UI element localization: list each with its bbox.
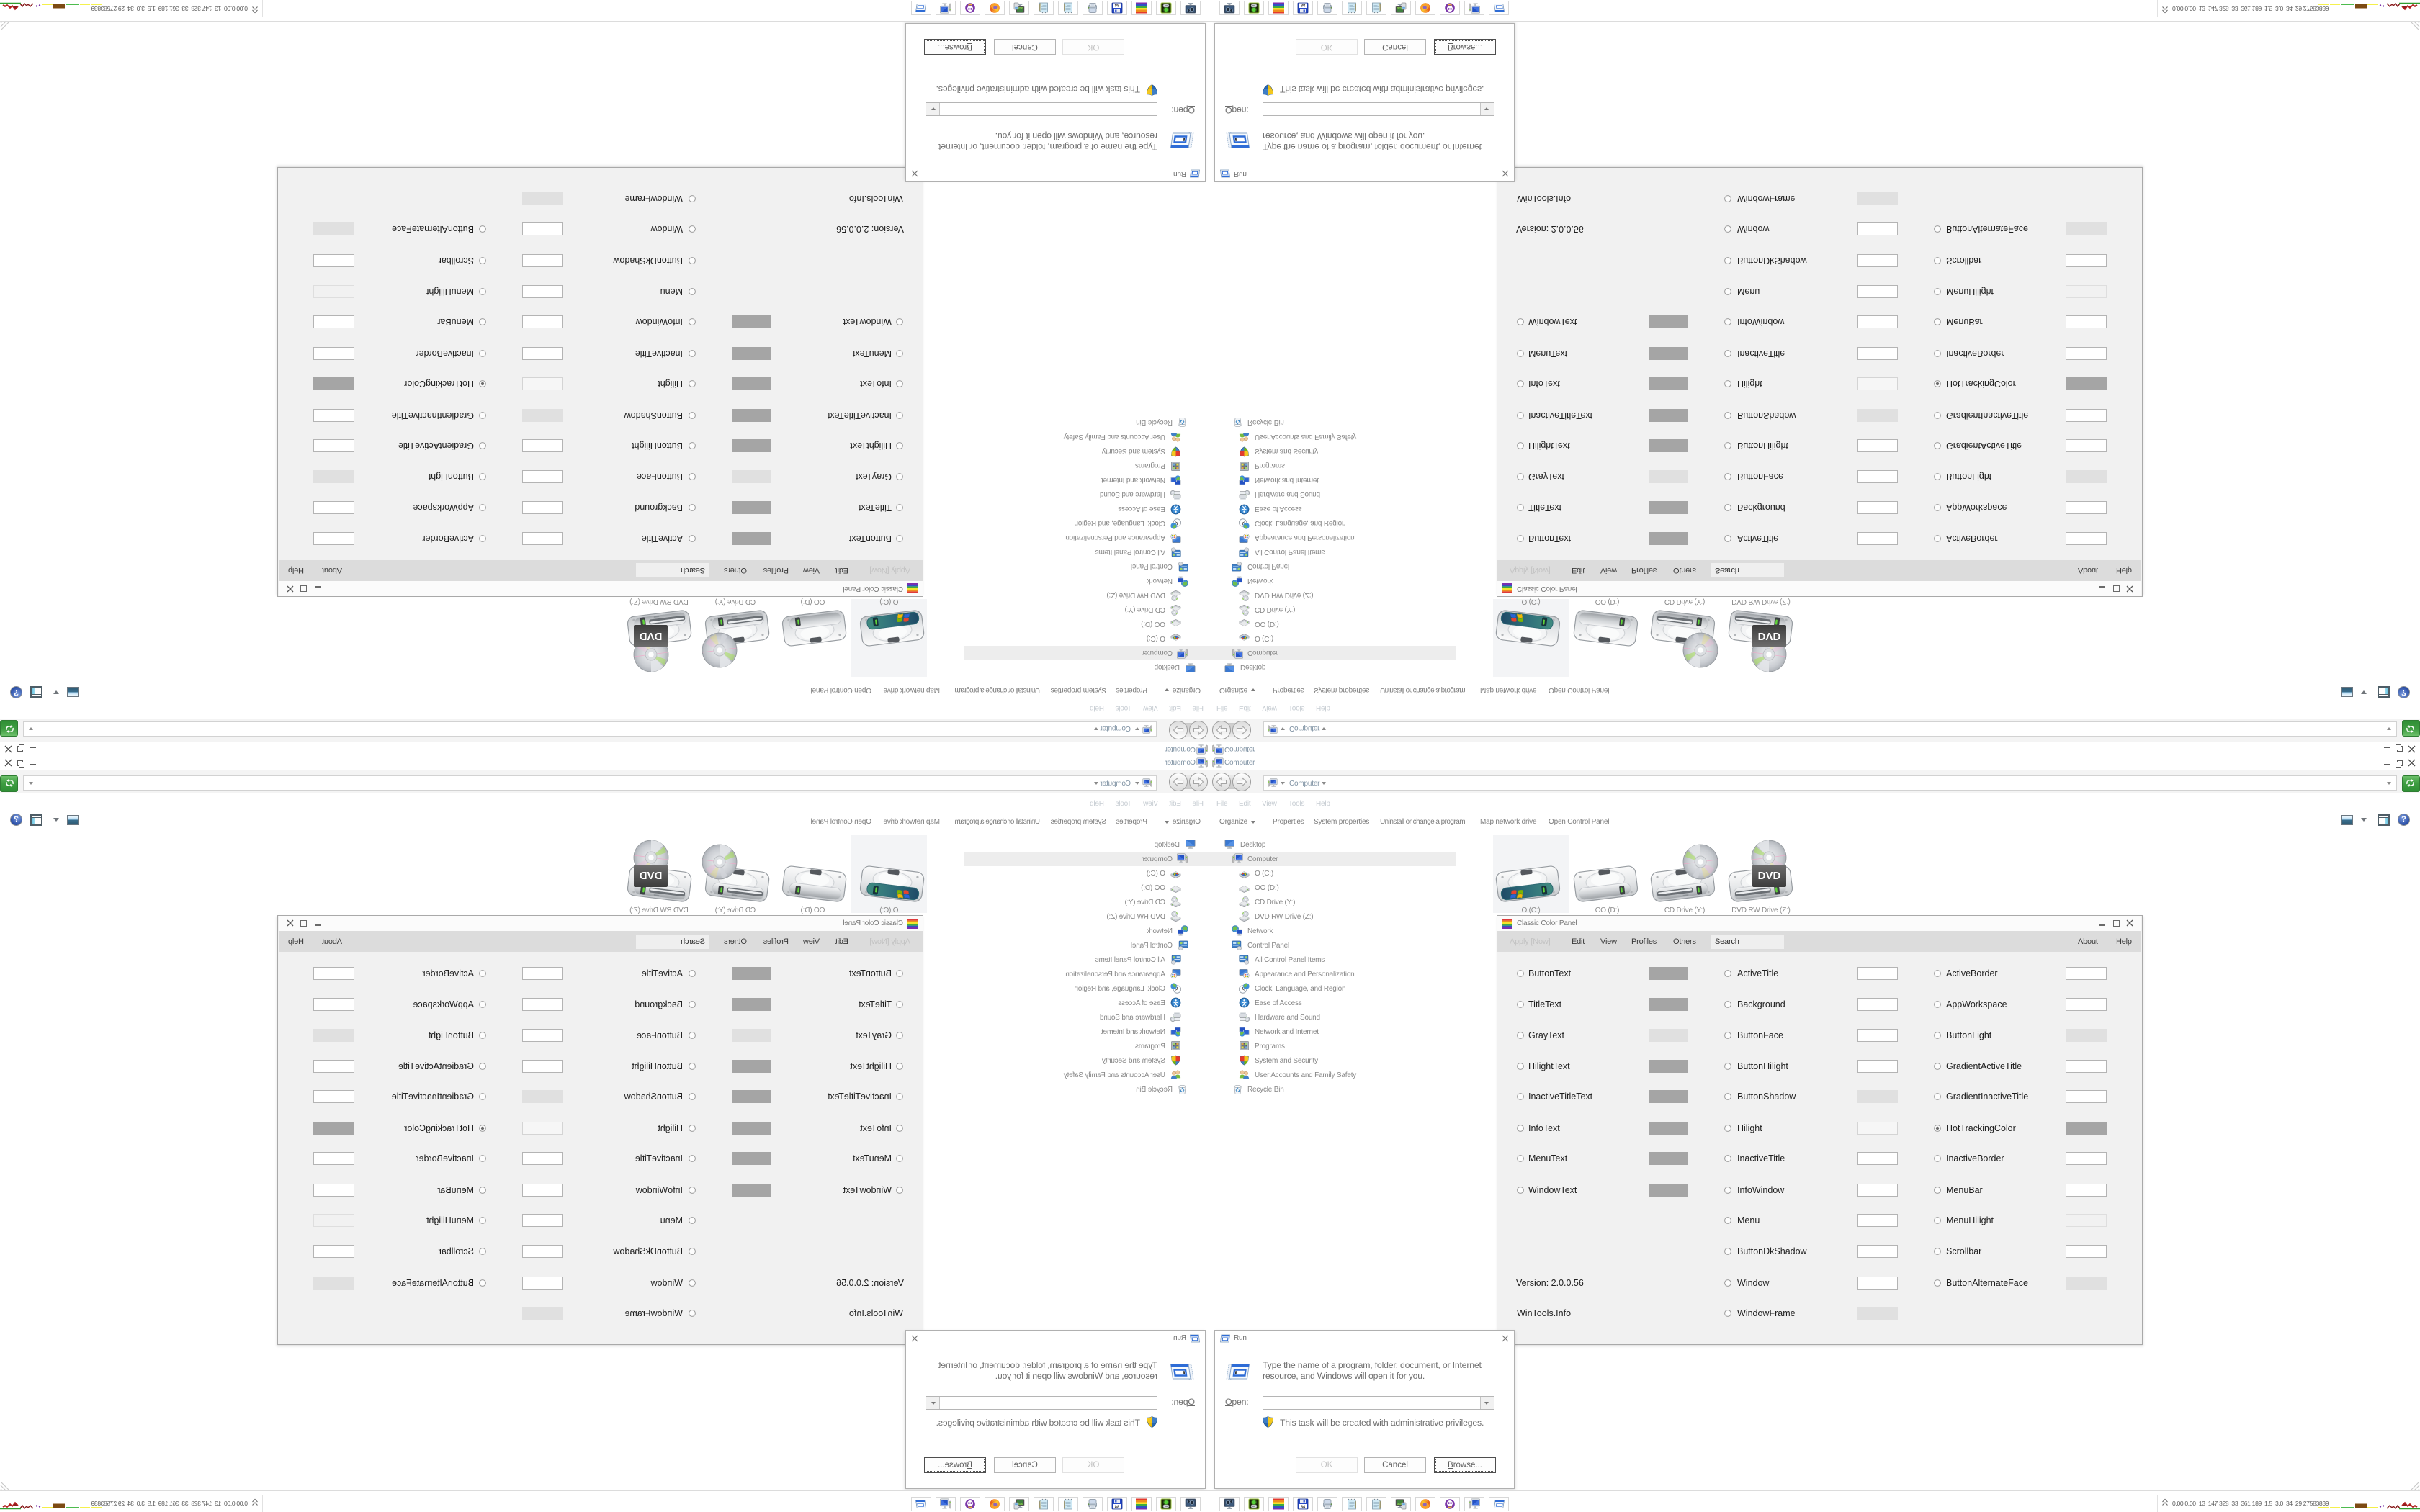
svg-text:64: 64 [1301,3,1306,7]
svg-text:64: 64 [1114,3,1119,7]
svg-text:64: 64 [1114,1505,1119,1509]
svg-text:64: 64 [1301,1505,1306,1509]
